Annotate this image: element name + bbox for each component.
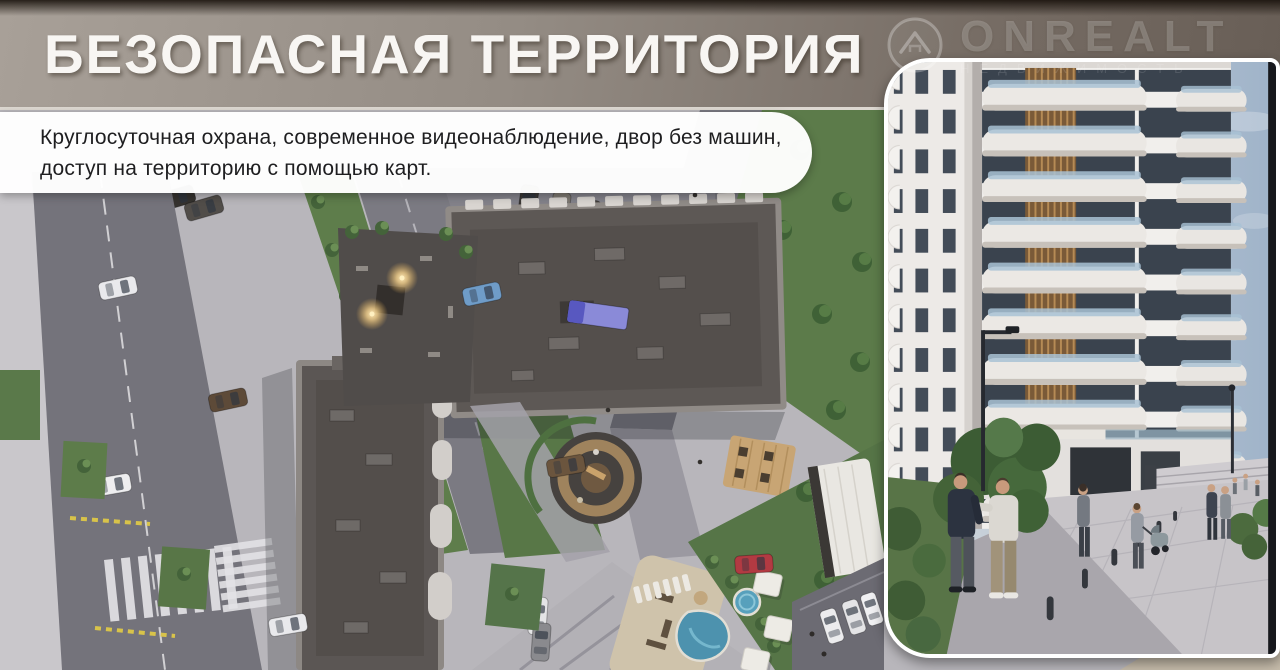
subtitle-panel: Круглосуточная охрана, современное видео… <box>0 112 812 193</box>
building-photo-panel <box>884 58 1280 658</box>
subtitle-line-1: Круглосуточная охрана, современное видео… <box>40 122 812 153</box>
courtyard <box>338 221 478 406</box>
building-roof-top <box>437 192 787 419</box>
photo-dark-edge <box>1268 62 1276 654</box>
neighbor-building <box>888 62 972 501</box>
building-render <box>888 62 1276 654</box>
page-title: БЕЗОПАСНАЯ ТЕРРИТОРИЯ <box>44 0 865 107</box>
subtitle-line-2: доступ на территорию с помощью карт. <box>40 153 812 184</box>
presentation-slide: БЕЗОПАСНАЯ ТЕРРИТОРИЯ Круглосуточная охр… <box>0 0 1280 670</box>
